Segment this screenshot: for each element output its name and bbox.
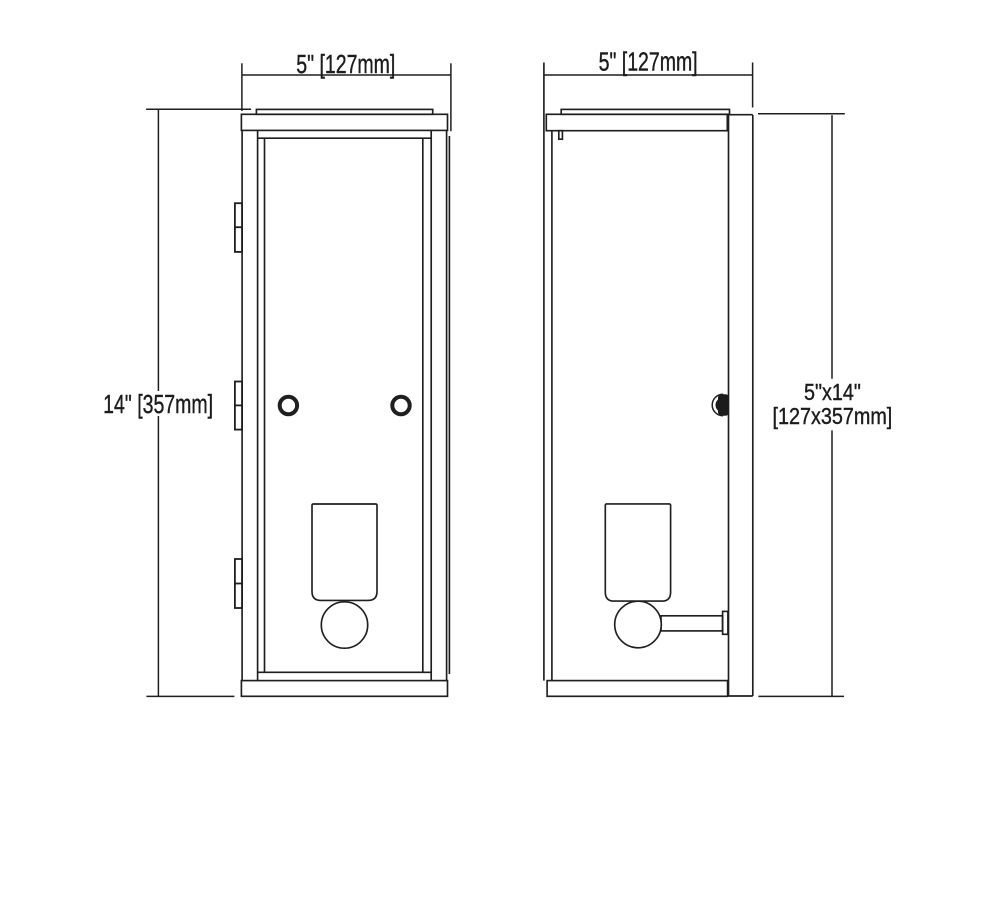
svg-text:[127x357mm]: [127x357mm] (773, 404, 893, 430)
svg-text:5" [127mm]: 5" [127mm] (296, 49, 395, 78)
svg-text:5" [127mm]: 5" [127mm] (599, 47, 698, 76)
svg-text:14" [357mm]: 14" [357mm] (103, 389, 213, 418)
svg-text:5"x14": 5"x14" (804, 380, 861, 406)
